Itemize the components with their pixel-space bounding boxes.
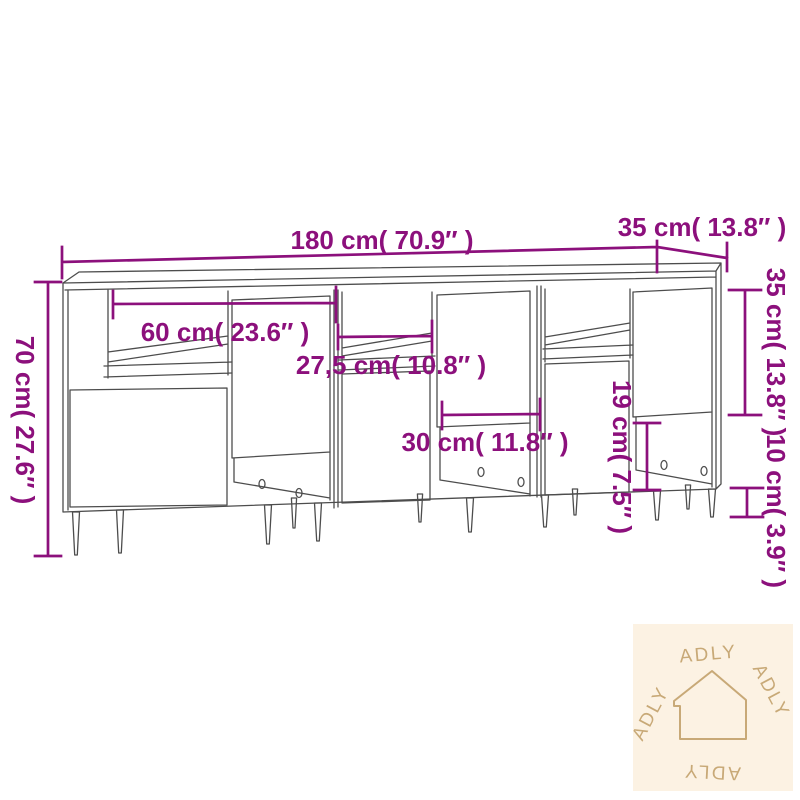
dim-depth-label: 35 cm( 13.8″ ) (618, 212, 787, 242)
dim-unit-width-label: 60 cm( 23.6″ ) (141, 317, 310, 347)
dim-leg-height-line (731, 488, 763, 517)
unit3-cam-hole (701, 467, 707, 476)
dim-depth-line (657, 243, 727, 271)
leg (685, 485, 690, 509)
leg (265, 505, 272, 544)
leg (117, 510, 124, 553)
dimension-annotations: 180 cm( 70.9″ ) 35 cm( 13.8″ ) 70 cm( 27… (10, 212, 791, 588)
leg (542, 495, 549, 527)
leg (73, 512, 80, 555)
dim-niche-width-label: 27,5 cm( 10.8″ ) (296, 350, 486, 380)
watermark: ADLY ADLY ADLY ADLY (628, 624, 794, 791)
leg (467, 498, 474, 532)
dim-open-section-height-label: 19 cm( 7.5″ ) (607, 380, 637, 534)
dim-niche-width-line (338, 321, 432, 352)
dim-door-height-line (729, 290, 761, 415)
dim-total-height-label: 70 cm( 27.6″ ) (10, 336, 40, 505)
watermark-brand-text: ADLY (682, 759, 741, 783)
unit2-cam-hole (518, 478, 524, 487)
leg (654, 491, 661, 520)
unit1-open-bottom (234, 452, 330, 500)
dim-door-width-line (442, 399, 540, 430)
product-dimension-diagram: 180 cm( 70.9″ ) 35 cm( 13.8″ ) 70 cm( 27… (0, 0, 800, 800)
leg (315, 503, 322, 541)
leg (291, 498, 296, 528)
dim-leg-height-label: 10 cm( 3.9″ ) (761, 434, 791, 588)
leg (417, 494, 422, 522)
unit3-open-shelf (543, 289, 633, 362)
dim-total-width-label: 180 cm( 70.9″ ) (290, 225, 473, 255)
unit3-tall-door (633, 288, 712, 417)
unit1-lower-door (70, 388, 227, 507)
dim-door-height-label: 35 cm( 13.8″ ) (761, 268, 791, 437)
unit2-cam-hole (478, 468, 484, 477)
unit3-cam-hole (661, 461, 667, 470)
leg (572, 489, 577, 515)
dim-door-width-label: 30 cm( 11.8″ ) (401, 427, 568, 457)
leg (709, 489, 716, 517)
diagram-canvas: 180 cm( 70.9″ ) 35 cm( 13.8″ ) 70 cm( 27… (0, 0, 800, 800)
